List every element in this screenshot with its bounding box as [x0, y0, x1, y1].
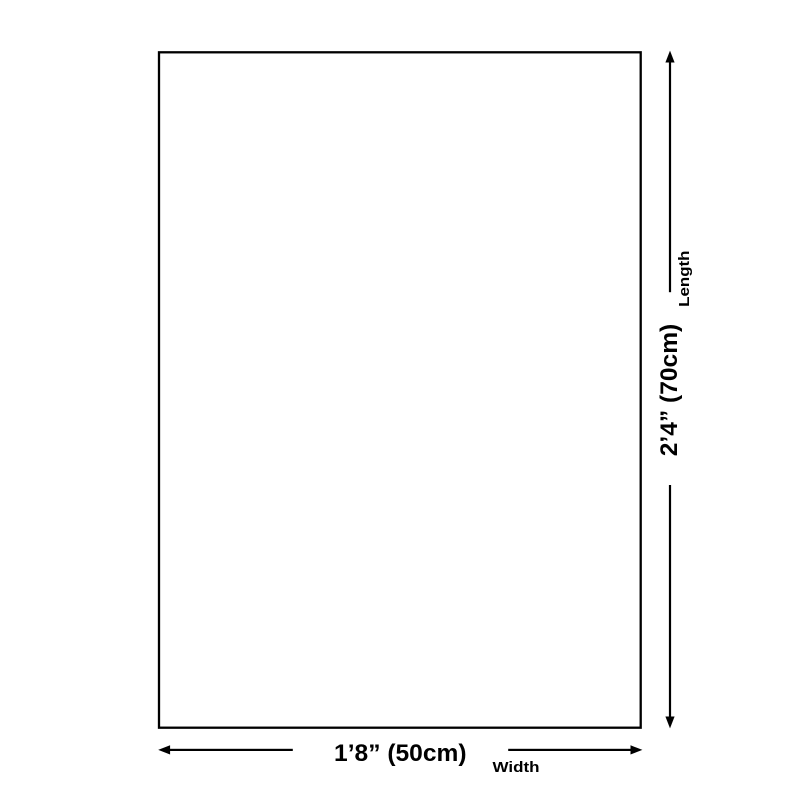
svg-text:Length: Length — [676, 251, 693, 307]
svg-text:2’4” (70cm): 2’4” (70cm) — [657, 324, 683, 457]
svg-text:Width: Width — [493, 759, 540, 776]
svg-text:1’8” (50cm): 1’8” (50cm) — [334, 741, 467, 767]
